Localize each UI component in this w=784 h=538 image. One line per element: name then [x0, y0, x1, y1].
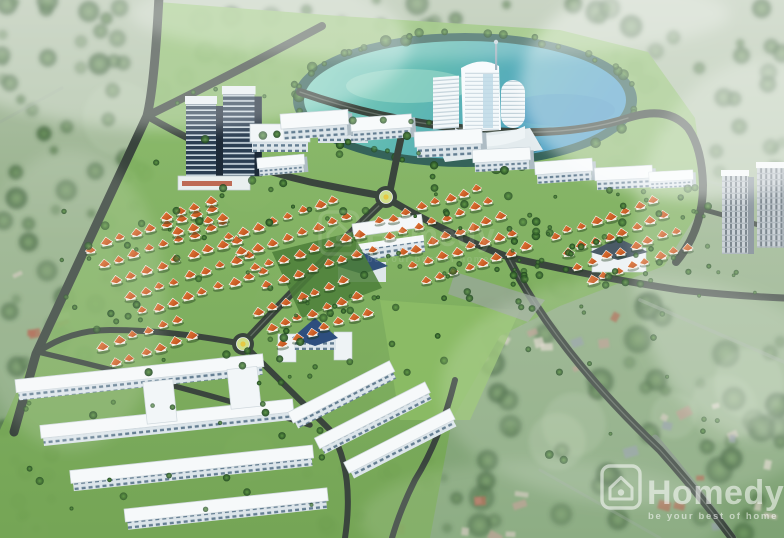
- tree: [346, 307, 354, 315]
- tree: [278, 379, 285, 386]
- watermark-tagline: be your best of home: [648, 511, 778, 522]
- tree: [195, 217, 204, 226]
- tree: [494, 267, 499, 272]
- tree: [168, 228, 172, 232]
- tree: [593, 239, 599, 245]
- tree: [408, 119, 413, 124]
- master-plan-render: Homedy be your best of home Homedy be yo…: [0, 0, 784, 538]
- tree: [569, 244, 575, 250]
- tree: [325, 216, 330, 221]
- tree: [460, 200, 468, 208]
- tree: [220, 193, 225, 198]
- tree: [222, 350, 230, 358]
- tree: [519, 218, 527, 226]
- tree: [349, 294, 353, 298]
- tree: [153, 160, 159, 166]
- tree: [70, 507, 74, 511]
- tree: [280, 333, 289, 342]
- tree: [317, 427, 324, 434]
- watermark-tagline: be your best of home: [367, 254, 490, 264]
- tree: [426, 120, 432, 126]
- tree: [260, 401, 266, 407]
- tree: [536, 260, 541, 265]
- tree: [435, 333, 441, 339]
- tree: [527, 213, 532, 218]
- tree: [546, 232, 550, 236]
- roundabout-north: [375, 186, 397, 208]
- tree: [166, 473, 172, 479]
- tree: [150, 403, 155, 408]
- tree: [532, 228, 540, 236]
- tree: [306, 301, 310, 305]
- tree: [218, 421, 222, 425]
- tree: [195, 275, 202, 282]
- tree: [288, 375, 292, 379]
- tree: [319, 454, 325, 460]
- tree: [37, 126, 52, 141]
- tree: [259, 131, 268, 140]
- tree: [434, 192, 438, 196]
- tree: [398, 264, 403, 269]
- tree: [500, 166, 509, 175]
- tree: [262, 409, 270, 417]
- tree: [520, 275, 528, 283]
- tree: [563, 266, 569, 272]
- tree: [170, 404, 176, 410]
- tree: [392, 304, 399, 311]
- tree: [616, 236, 623, 243]
- tree: [511, 238, 518, 245]
- watermark-brand: Homedy: [366, 217, 495, 253]
- tree: [341, 308, 346, 313]
- tree: [444, 210, 450, 216]
- screenshot-root: Homedy be your best of home Homedy be yo…: [0, 0, 784, 538]
- tree: [120, 492, 128, 500]
- tree: [606, 187, 613, 194]
- watermark-brand: Homedy: [647, 474, 784, 512]
- tree: [360, 271, 368, 279]
- tree: [416, 151, 421, 156]
- tree: [517, 258, 521, 262]
- tree: [578, 243, 585, 250]
- tree: [202, 235, 207, 240]
- tree: [307, 207, 313, 213]
- tree: [466, 295, 473, 302]
- tree: [312, 364, 317, 369]
- tree: [279, 179, 287, 187]
- tree: [257, 381, 262, 386]
- tree: [246, 270, 250, 274]
- tree: [464, 288, 471, 295]
- tree: [332, 304, 337, 309]
- tree: [36, 477, 44, 485]
- tree: [268, 187, 273, 192]
- tree: [267, 285, 273, 291]
- tree: [248, 176, 256, 184]
- tree: [568, 251, 574, 257]
- tree: [442, 271, 446, 275]
- tree: [536, 271, 544, 279]
- tree: [273, 131, 280, 138]
- tree: [223, 474, 230, 481]
- tree: [27, 466, 33, 472]
- tree: [403, 132, 411, 140]
- tree: [362, 207, 370, 215]
- tree: [404, 369, 411, 376]
- tree: [283, 328, 289, 334]
- tree: [326, 309, 334, 317]
- tree: [602, 234, 608, 240]
- tree: [345, 139, 352, 146]
- tree: [219, 184, 227, 192]
- tree: [243, 488, 251, 496]
- tree: [349, 117, 357, 125]
- tree: [239, 362, 247, 370]
- tree: [307, 374, 312, 379]
- tree: [511, 282, 516, 287]
- tree: [532, 217, 541, 226]
- tree: [620, 203, 627, 210]
- tree: [612, 268, 618, 274]
- tree: [430, 174, 436, 180]
- tree: [291, 205, 295, 209]
- tree: [431, 184, 439, 192]
- tree: [511, 249, 515, 253]
- tree: [376, 295, 380, 299]
- tree: [278, 432, 285, 439]
- tree: [296, 338, 304, 346]
- tree: [162, 358, 166, 362]
- tree: [268, 337, 274, 343]
- tree: [371, 146, 378, 153]
- tree: [173, 207, 181, 215]
- tree: [513, 268, 517, 272]
- tree: [244, 347, 251, 354]
- tree: [201, 135, 210, 144]
- tree: [173, 255, 180, 262]
- tree: [616, 193, 620, 197]
- tree: [389, 341, 396, 348]
- tree: [449, 267, 457, 275]
- tree: [310, 503, 314, 507]
- tree: [276, 355, 283, 362]
- tree: [618, 218, 626, 226]
- tree: [553, 195, 557, 199]
- tree: [380, 117, 387, 124]
- tree: [203, 507, 208, 512]
- tree: [294, 314, 298, 318]
- tree: [446, 274, 450, 278]
- tree: [346, 358, 353, 365]
- tree: [430, 161, 438, 169]
- tree: [372, 295, 377, 300]
- tree: [336, 150, 344, 158]
- tree: [319, 314, 328, 323]
- tree: [507, 226, 513, 232]
- tree: [107, 478, 112, 483]
- tree: [441, 295, 447, 301]
- tree: [504, 192, 513, 201]
- tree: [510, 271, 518, 279]
- tree: [385, 148, 390, 153]
- tree: [265, 219, 273, 227]
